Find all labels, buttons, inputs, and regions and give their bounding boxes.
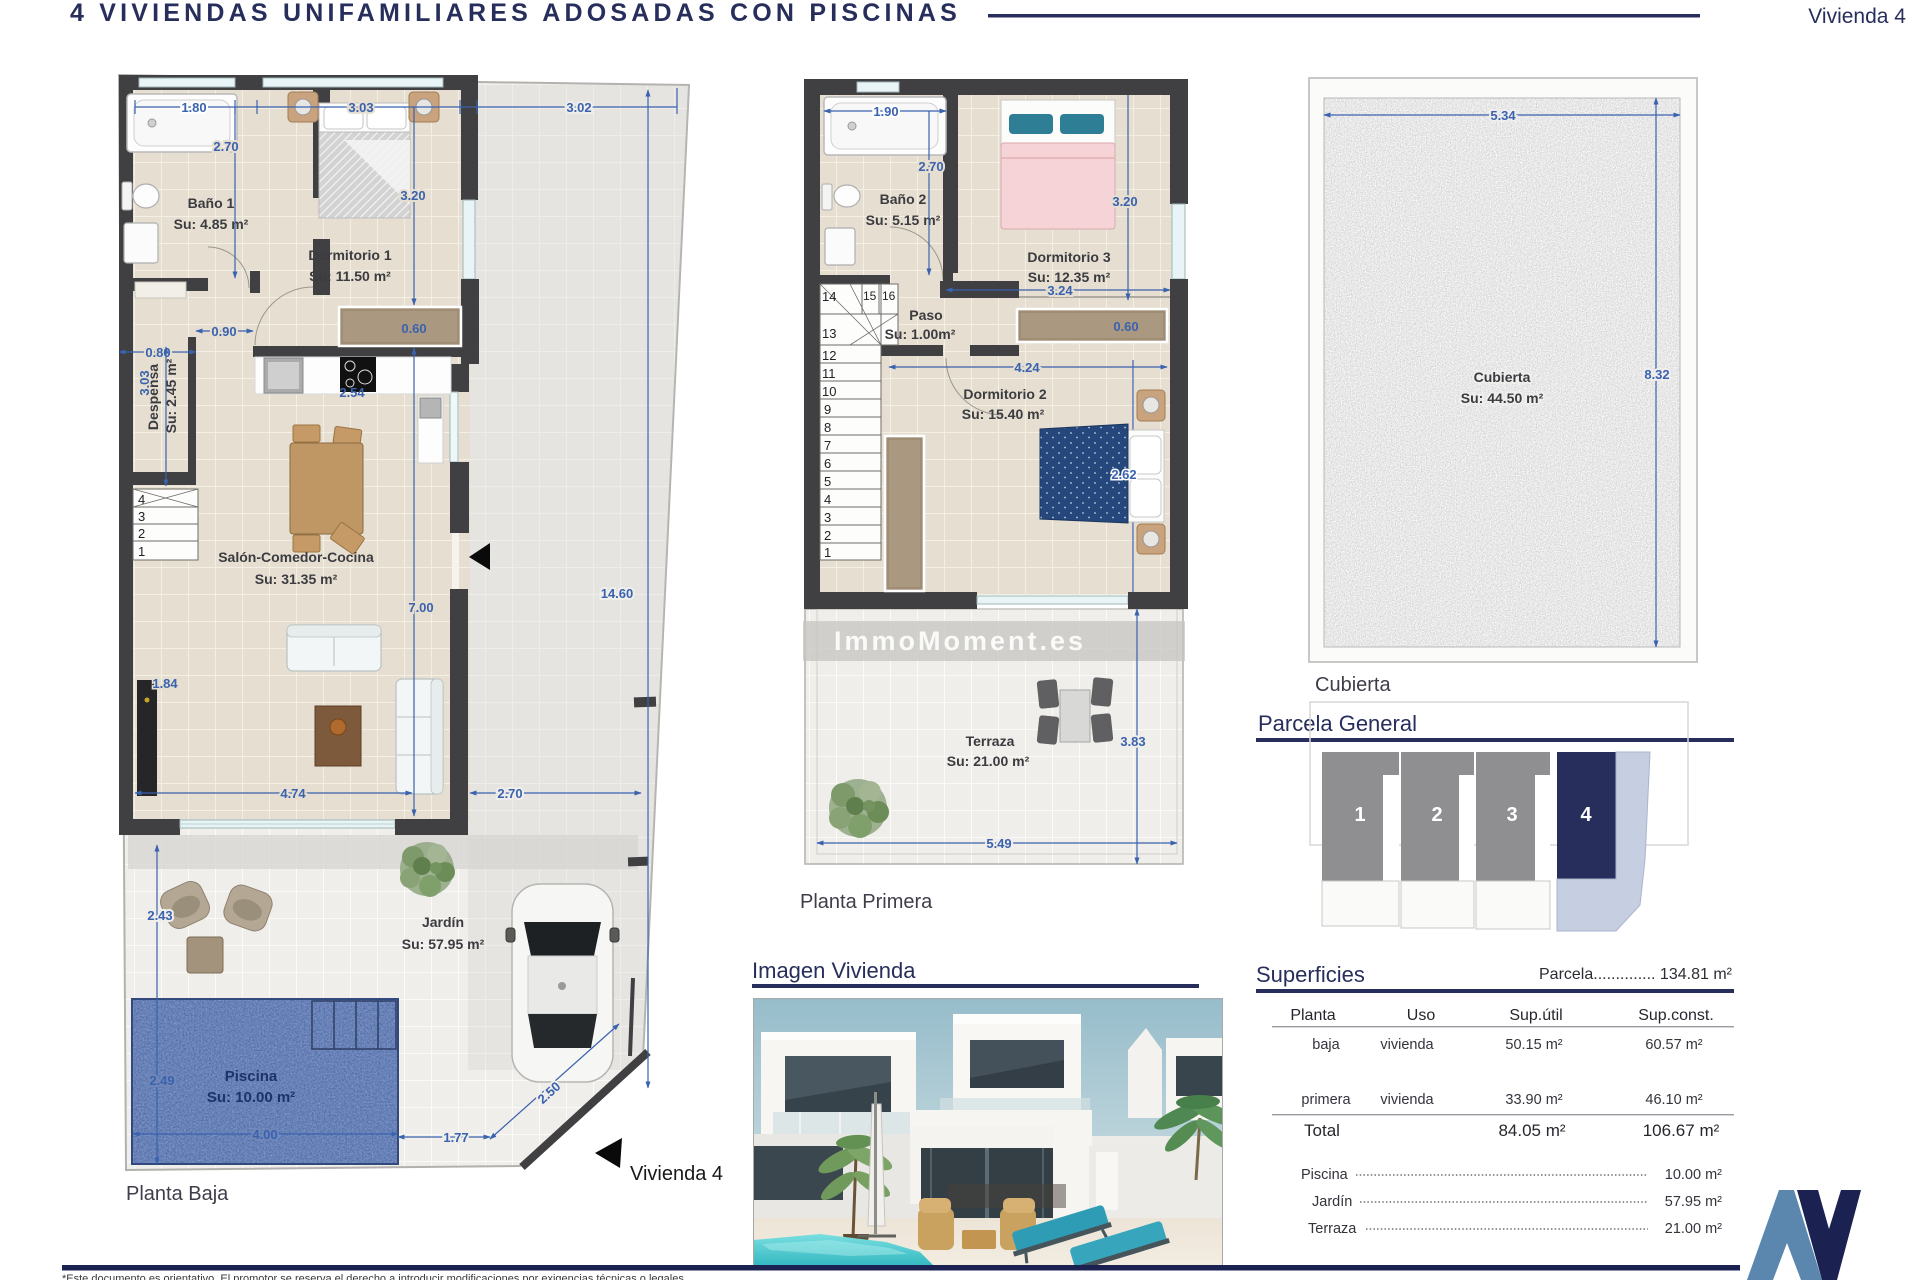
svg-text:46.10 m²: 46.10 m² bbox=[1645, 1092, 1702, 1108]
svg-text:2: 2 bbox=[1431, 804, 1442, 826]
svg-text:11: 11 bbox=[822, 366, 836, 381]
svg-text:50.15 m²: 50.15 m² bbox=[1505, 1037, 1562, 1053]
svg-text:Su: 10.00 m²: Su: 10.00 m² bbox=[207, 1089, 295, 1106]
svg-text:Su: 1.00m²: Su: 1.00m² bbox=[885, 326, 956, 342]
svg-text:Su: 21.00 m²: Su: 21.00 m² bbox=[947, 753, 1030, 769]
svg-text:5.49: 5.49 bbox=[986, 836, 1011, 851]
svg-text:Imagen Vivienda: Imagen Vivienda bbox=[752, 958, 916, 983]
svg-text:10: 10 bbox=[822, 384, 836, 399]
svg-text:*Este documento es orientativo: *Este documento es orientativo. El promo… bbox=[62, 1273, 687, 1280]
svg-text:9: 9 bbox=[824, 402, 831, 417]
svg-text:Su: 57.95 m²: Su: 57.95 m² bbox=[402, 936, 485, 952]
svg-text:Terraza: Terraza bbox=[966, 733, 1015, 749]
svg-text:6: 6 bbox=[824, 456, 831, 471]
svg-text:13: 13 bbox=[822, 326, 836, 341]
svg-text:14: 14 bbox=[822, 289, 836, 304]
svg-text:Planta Primera: Planta Primera bbox=[800, 891, 933, 913]
svg-text:4.24: 4.24 bbox=[1014, 360, 1040, 375]
svg-text:0.60: 0.60 bbox=[1113, 319, 1138, 334]
svg-text:106.67 m²: 106.67 m² bbox=[1643, 1121, 1720, 1140]
svg-text:ImmoMoment.es: ImmoMoment.es bbox=[834, 626, 1086, 656]
svg-text:3: 3 bbox=[1506, 804, 1517, 826]
svg-text:4.00: 4.00 bbox=[252, 1127, 277, 1142]
svg-text:Cubierta: Cubierta bbox=[1474, 369, 1531, 385]
svg-text:7: 7 bbox=[824, 438, 831, 453]
svg-text:Terraza: Terraza bbox=[1308, 1221, 1357, 1237]
svg-text:Su: 44.50 m²: Su: 44.50 m² bbox=[1461, 390, 1544, 406]
svg-text:Parcela General: Parcela General bbox=[1258, 711, 1417, 736]
svg-text:1: 1 bbox=[138, 544, 145, 559]
svg-text:1: 1 bbox=[824, 545, 831, 560]
svg-text:Su: 11.50 m²: Su: 11.50 m² bbox=[309, 268, 391, 284]
svg-text:Su: 15.40 m²: Su: 15.40 m² bbox=[962, 406, 1045, 422]
svg-text:4: 4 bbox=[824, 492, 831, 507]
svg-text:4: 4 bbox=[1580, 804, 1592, 826]
svg-text:Piscina: Piscina bbox=[225, 1068, 278, 1085]
svg-text:Cubierta: Cubierta bbox=[1315, 674, 1391, 696]
svg-text:1.90: 1.90 bbox=[873, 104, 898, 119]
svg-text:Planta: Planta bbox=[1290, 1007, 1335, 1024]
svg-text:3.03: 3.03 bbox=[348, 100, 373, 115]
svg-text:3: 3 bbox=[824, 510, 831, 525]
svg-text:10.00 m²: 10.00 m² bbox=[1665, 1167, 1722, 1183]
svg-text:Superficies: Superficies bbox=[1256, 962, 1365, 987]
svg-text:Paso: Paso bbox=[909, 307, 942, 323]
svg-text:2.70: 2.70 bbox=[213, 139, 238, 154]
svg-text:Su: 4.85 m²: Su: 4.85 m² bbox=[174, 216, 249, 232]
svg-text:Dormitorio 1: Dormitorio 1 bbox=[308, 247, 391, 263]
svg-text:primera: primera bbox=[1301, 1092, 1351, 1108]
svg-text:15: 15 bbox=[863, 289, 877, 303]
svg-text:Vivienda 4: Vivienda 4 bbox=[1808, 5, 1906, 28]
svg-text:0.90: 0.90 bbox=[211, 324, 236, 339]
svg-text:21.00 m²: 21.00 m² bbox=[1665, 1221, 1722, 1237]
svg-text:0.60: 0.60 bbox=[401, 321, 426, 336]
svg-text:2: 2 bbox=[138, 526, 145, 541]
svg-text:12: 12 bbox=[822, 348, 836, 363]
svg-text:Total: Total bbox=[1304, 1121, 1340, 1140]
svg-text:2.49: 2.49 bbox=[149, 1073, 174, 1088]
svg-text:3: 3 bbox=[138, 509, 145, 524]
svg-text:4: 4 bbox=[138, 492, 145, 507]
svg-text:33.90 m²: 33.90 m² bbox=[1505, 1092, 1562, 1108]
svg-text:Parcela.............. 134.81 m: Parcela.............. 134.81 m² bbox=[1539, 966, 1733, 983]
svg-text:8.32: 8.32 bbox=[1644, 367, 1669, 382]
svg-text:Jardín: Jardín bbox=[422, 914, 464, 930]
svg-text:60.57 m²: 60.57 m² bbox=[1645, 1037, 1702, 1053]
svg-text:Dormitorio 3: Dormitorio 3 bbox=[1027, 249, 1110, 265]
svg-text:2.62: 2.62 bbox=[1111, 467, 1136, 482]
svg-text:2.43: 2.43 bbox=[147, 908, 172, 923]
svg-text:3.83: 3.83 bbox=[1120, 734, 1145, 749]
svg-text:84.05 m²: 84.05 m² bbox=[1498, 1121, 1565, 1140]
svg-text:vivienda: vivienda bbox=[1380, 1037, 1434, 1053]
svg-text:3.20: 3.20 bbox=[1112, 194, 1137, 209]
svg-text:Su: 2.45 m²: Su: 2.45 m² bbox=[163, 358, 179, 433]
svg-text:Vivienda 4: Vivienda 4 bbox=[630, 1163, 723, 1185]
svg-text:3.02: 3.02 bbox=[566, 100, 591, 115]
svg-text:2: 2 bbox=[824, 528, 831, 543]
svg-text:Su: 31.35 m²: Su: 31.35 m² bbox=[255, 571, 338, 587]
svg-text:4 VIVIENDAS UNIFAMILIARES ADOS: 4 VIVIENDAS UNIFAMILIARES ADOSADAS CON P… bbox=[70, 0, 961, 27]
svg-text:baja: baja bbox=[1312, 1037, 1340, 1053]
svg-text:2.54: 2.54 bbox=[339, 385, 365, 400]
svg-text:vivienda: vivienda bbox=[1380, 1092, 1434, 1108]
svg-text:Baño 2: Baño 2 bbox=[880, 191, 927, 207]
svg-text:1.84: 1.84 bbox=[152, 676, 178, 691]
svg-text:14.60: 14.60 bbox=[601, 586, 634, 601]
svg-text:2.70: 2.70 bbox=[918, 159, 943, 174]
svg-text:Baño 1: Baño 1 bbox=[188, 195, 235, 211]
svg-text:1: 1 bbox=[1354, 804, 1365, 826]
svg-text:Piscina: Piscina bbox=[1301, 1167, 1349, 1183]
svg-text:57.95 m²: 57.95 m² bbox=[1665, 1194, 1722, 1210]
svg-text:0.80: 0.80 bbox=[145, 345, 170, 360]
svg-text:8: 8 bbox=[824, 420, 831, 435]
svg-text:3.20: 3.20 bbox=[400, 188, 425, 203]
svg-text:Uso: Uso bbox=[1407, 1007, 1436, 1024]
svg-text:5.34: 5.34 bbox=[1490, 108, 1516, 123]
svg-text:Salón-Comedor-Cocina: Salón-Comedor-Cocina bbox=[218, 549, 374, 565]
svg-text:5: 5 bbox=[824, 474, 831, 489]
svg-text:Dormitorio 2: Dormitorio 2 bbox=[963, 386, 1046, 402]
svg-text:7.00: 7.00 bbox=[408, 600, 433, 615]
svg-text:Sup.útil: Sup.útil bbox=[1509, 1007, 1562, 1024]
svg-text:1.80: 1.80 bbox=[181, 100, 206, 115]
svg-text:Despensa: Despensa bbox=[145, 364, 161, 430]
svg-text:2.70: 2.70 bbox=[497, 786, 522, 801]
svg-text:Planta Baja: Planta Baja bbox=[126, 1183, 229, 1205]
svg-text:16: 16 bbox=[882, 289, 896, 303]
svg-text:4.74: 4.74 bbox=[280, 786, 306, 801]
svg-text:Sup.const.: Sup.const. bbox=[1638, 1007, 1714, 1024]
svg-text:3.24: 3.24 bbox=[1047, 283, 1073, 298]
svg-text:1.77: 1.77 bbox=[443, 1130, 468, 1145]
svg-text:Jardín: Jardín bbox=[1312, 1194, 1352, 1210]
